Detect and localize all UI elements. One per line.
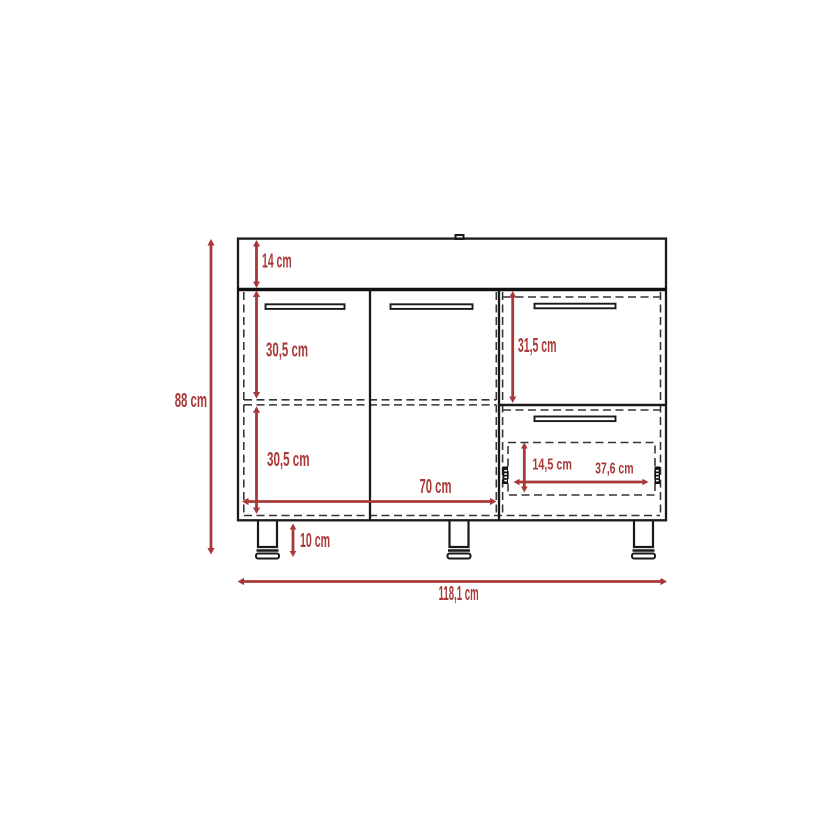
svg-text:30,5 cm: 30,5 cm xyxy=(266,340,308,362)
svg-text:10 cm: 10 cm xyxy=(300,530,330,552)
svg-text:37,6 cm: 37,6 cm xyxy=(595,461,634,478)
svg-text:88 cm: 88 cm xyxy=(175,390,207,412)
svg-text:14,5 cm: 14,5 cm xyxy=(532,457,572,474)
svg-text:70 cm: 70 cm xyxy=(420,476,452,498)
svg-text:31,5 cm: 31,5 cm xyxy=(518,335,557,357)
svg-text:118,1 cm: 118,1 cm xyxy=(439,583,479,605)
svg-text:30,5 cm: 30,5 cm xyxy=(267,449,310,471)
svg-text:14 cm: 14 cm xyxy=(262,251,292,273)
